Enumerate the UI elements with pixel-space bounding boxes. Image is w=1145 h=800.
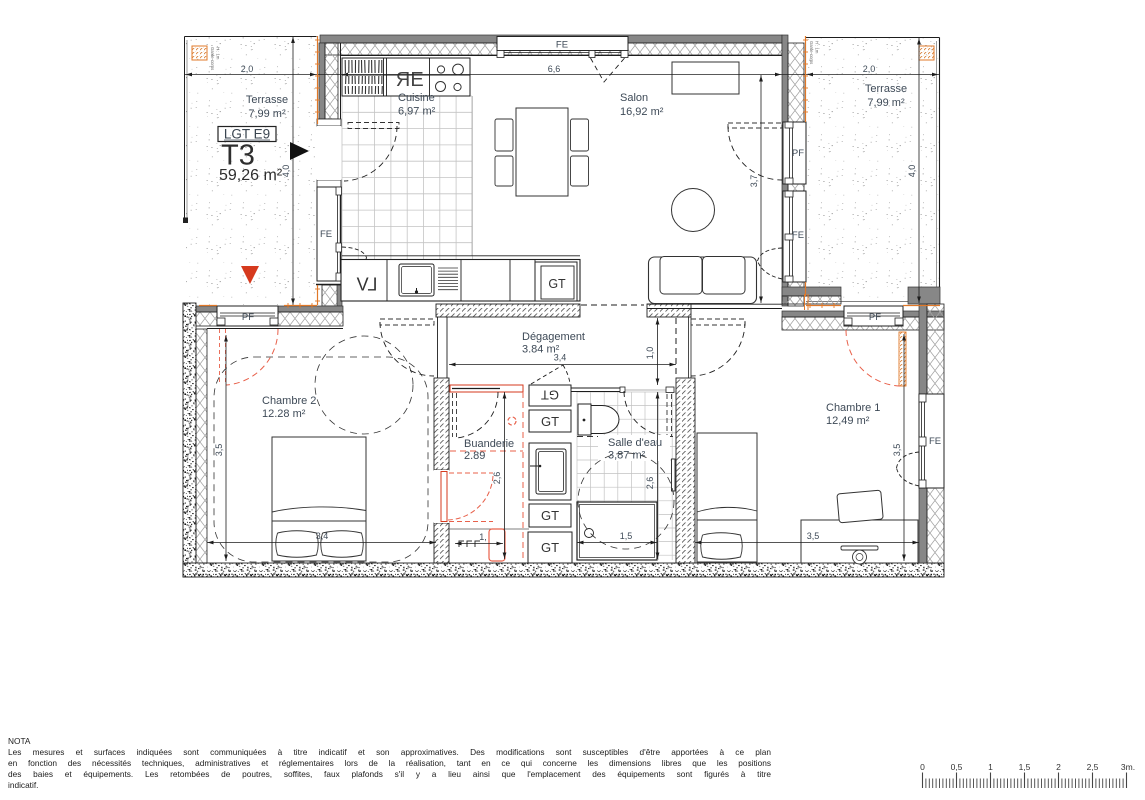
svg-text:1,5: 1,5 bbox=[1019, 762, 1031, 772]
svg-text:0: 0 bbox=[920, 762, 925, 772]
svg-text:3m.: 3m. bbox=[1121, 762, 1135, 772]
svg-text:2: 2 bbox=[1056, 762, 1061, 772]
svg-text:0,5: 0,5 bbox=[951, 762, 963, 772]
svg-text:1: 1 bbox=[988, 762, 993, 772]
svg-text:2,5: 2,5 bbox=[1087, 762, 1099, 772]
